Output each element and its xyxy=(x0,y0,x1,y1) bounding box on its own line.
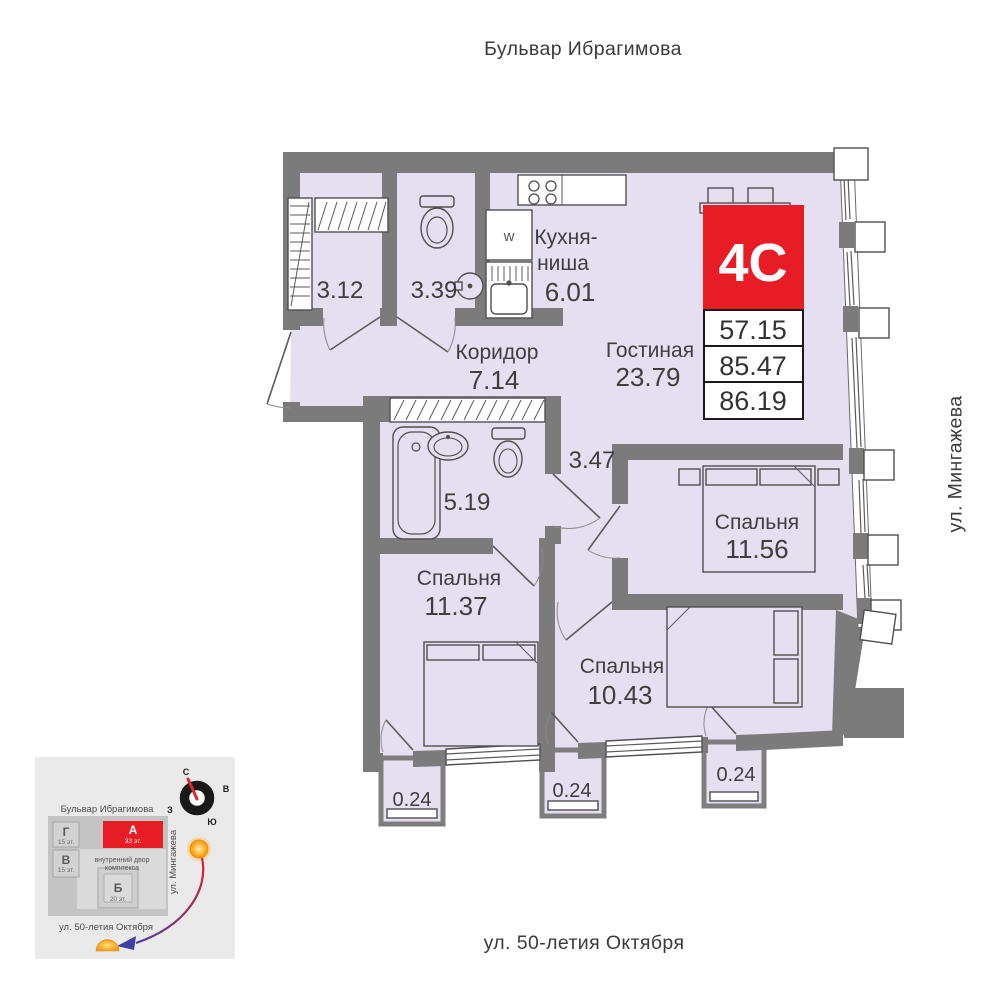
label-wc-area: 3.39 xyxy=(411,277,458,304)
label-kitchen-line1: Кухня- xyxy=(534,226,597,249)
label-balcony-right-area: 0.24 xyxy=(717,764,756,786)
washer-label: w xyxy=(503,228,515,245)
floorplan-page: Бульвар Ибрагимова ул. Мингажева ул. 50-… xyxy=(0,0,1000,1000)
label-kitchen-area: 6.01 xyxy=(545,277,596,307)
toilet-icon-2 xyxy=(492,428,525,477)
compass-west: З xyxy=(167,805,173,815)
sun-icon xyxy=(190,840,209,859)
minimap-building-b-floors: 20 эт. xyxy=(110,896,126,903)
label-bedroom-bottom-area: 10.43 xyxy=(587,680,652,710)
stove-icon xyxy=(518,175,626,205)
minimap-courtyard-line1: внутренний двор xyxy=(94,856,149,864)
minimap: Бульвар Ибрагимова Г 15 эт. В 15 эт. А 3… xyxy=(35,757,235,959)
label-living-area: 23.79 xyxy=(615,362,680,392)
label-balcony-middle-area: 0.24 xyxy=(553,780,592,802)
washing-machine-icon: w xyxy=(486,210,532,260)
label-bedroom-bottom-name: Спальня xyxy=(580,655,664,678)
unit-badge: 4С 57.15 85.47 86.19 xyxy=(703,205,804,419)
unit-area-row-2: 85.47 xyxy=(719,351,787,381)
entrance-door xyxy=(267,332,291,404)
minimap-building-b-label: Б xyxy=(114,881,123,895)
label-corridor-name: Коридор xyxy=(456,341,539,364)
unit-area-row-1: 57.15 xyxy=(719,315,787,345)
minimap-street-right: ул. Мингажева xyxy=(168,829,179,894)
label-balcony-left-area: 0.24 xyxy=(393,789,432,811)
balcony-middle-window xyxy=(548,801,598,810)
minimap-building-v-label: В xyxy=(62,853,71,867)
bed-bedroom-bottom xyxy=(667,607,802,707)
label-corridor-area: 7.14 xyxy=(469,365,520,395)
minimap-street-top: Бульвар Ибрагимова xyxy=(61,804,155,815)
unit-code: 4С xyxy=(718,233,787,293)
unit-area-row-3: 86.19 xyxy=(719,386,787,416)
toilet-icon xyxy=(420,196,454,248)
bed-bedroom-left xyxy=(424,642,538,746)
minimap-building-g-label: Г xyxy=(63,825,70,839)
minimap-building-a-label: А xyxy=(129,823,138,837)
label-bedroom-right-area: 11.56 xyxy=(725,534,788,564)
label-kitchen-line2: ниша xyxy=(537,252,589,275)
label-bathroom-area: 5.19 xyxy=(444,489,491,516)
minimap-building-g-floors: 15 эт. xyxy=(58,839,74,846)
minimap-street-bottom: ул. 50-летия Октября xyxy=(59,922,153,933)
kitchen-sink-icon xyxy=(486,262,532,318)
label-wardrobe-area: 3.12 xyxy=(317,277,364,304)
bathroom-vent-hatch xyxy=(390,398,545,422)
minimap-courtyard-line2: комплекса xyxy=(105,865,139,872)
label-living-name: Гостиная xyxy=(606,339,694,362)
minimap-building-a-floors: 33 эт. xyxy=(125,838,141,845)
label-hall-area: 3.47 xyxy=(569,447,616,474)
label-bedroom-left-name: Спальня xyxy=(417,567,501,590)
compass-north: С xyxy=(183,767,190,777)
minimap-building-v-floors: 15 эт. xyxy=(58,867,74,874)
compass-south: Ю xyxy=(207,817,216,827)
oval-sink-icon xyxy=(428,432,468,460)
compass-east: В xyxy=(223,784,230,794)
balcony-right-window xyxy=(710,792,758,801)
label-bedroom-right-name: Спальня xyxy=(715,511,799,534)
floorplan-svg: w xyxy=(0,0,1000,1000)
label-bedroom-left-area: 11.37 xyxy=(424,591,487,621)
